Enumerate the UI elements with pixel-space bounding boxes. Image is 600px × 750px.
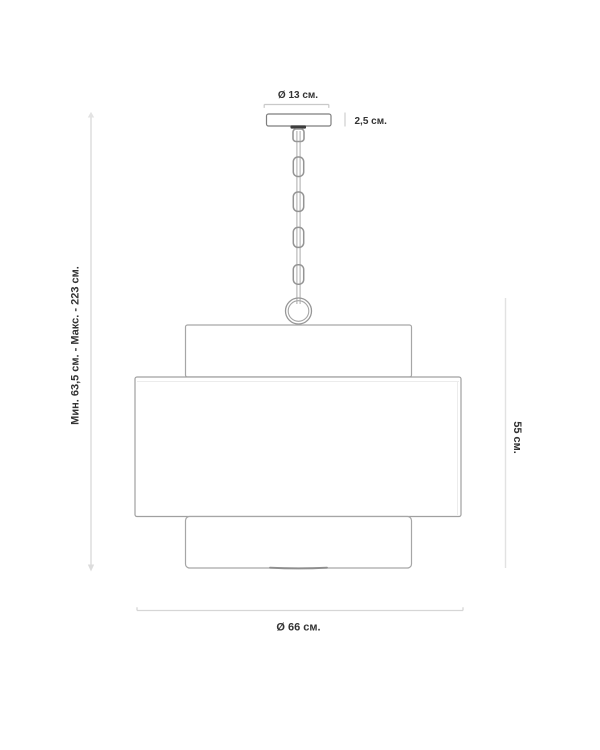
svg-text:55 см.: 55 см. [511,421,523,454]
svg-text:2,5 см.: 2,5 см. [355,116,388,127]
svg-text:Ø 13 см.: Ø 13 см. [278,90,318,101]
svg-text:Мин. 63,5 см. - Макс. - 223 см: Мин. 63,5 см. - Макс. - 223 см. [70,266,82,425]
svg-text:Ø 66 см.: Ø 66 см. [276,622,320,634]
